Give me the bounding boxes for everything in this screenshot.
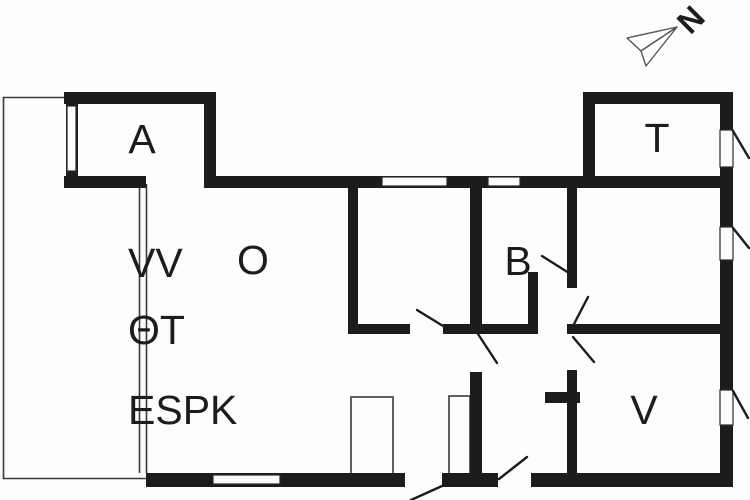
floor-plan: N A T O B V VV ΘT ESPK	[0, 0, 750, 500]
wall-segment	[583, 92, 595, 188]
room-label-v: V	[630, 387, 658, 433]
wall-segment	[583, 92, 733, 104]
wall-segment	[720, 92, 733, 130]
wall-segment	[204, 176, 733, 188]
door-opening	[405, 472, 442, 488]
room-label-o: O	[237, 237, 269, 283]
fixture-label-ot: ΘT	[128, 307, 185, 353]
wall-segment	[443, 324, 538, 334]
room-label-t: T	[644, 115, 669, 161]
wall-segment	[204, 92, 216, 188]
wall-segment	[545, 392, 580, 403]
wall-segment	[348, 188, 358, 334]
window	[488, 177, 520, 186]
door-opening	[720, 227, 733, 260]
fixture-label-vv: VV	[128, 240, 183, 286]
window	[382, 177, 447, 186]
wall-segment	[567, 324, 720, 334]
door-opening	[720, 130, 733, 167]
door-opening	[720, 390, 733, 425]
fixture-label-espk: ESPK	[128, 387, 237, 433]
wall-segment	[348, 324, 410, 334]
window	[213, 475, 280, 484]
wall-segment	[470, 372, 482, 475]
floor-plan-canvas: N A T O B V VV ΘT ESPK	[0, 0, 750, 500]
room-label-a: A	[128, 116, 156, 162]
wall-segment	[720, 167, 733, 227]
wall-segment	[470, 188, 482, 334]
wall-segment	[567, 370, 577, 475]
wall-segment	[64, 92, 216, 104]
window	[67, 106, 76, 171]
wall-segment	[720, 260, 733, 390]
wall-segment	[64, 176, 146, 188]
room-label-b: B	[504, 238, 531, 284]
